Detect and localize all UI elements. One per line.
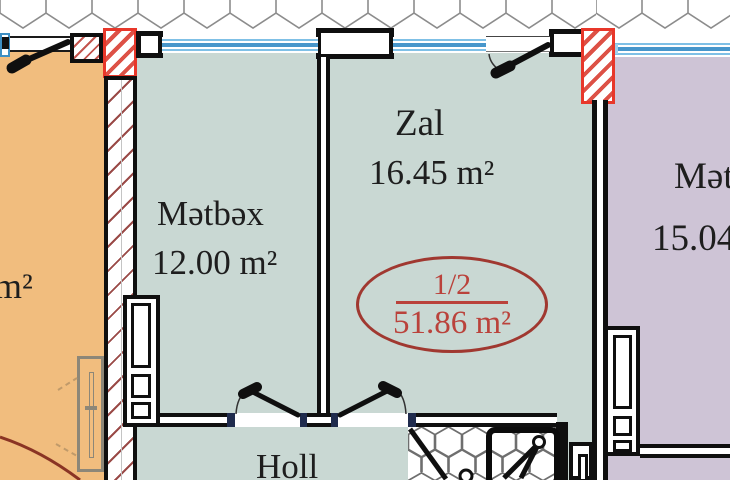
label-adjacent-left-area-suffix: m² [0, 268, 33, 304]
adjacent-left-door-frame [77, 356, 104, 472]
door-panel-line [89, 372, 94, 458]
total-area-stamp: 1/2 51.86 m² [356, 256, 548, 353]
window-end-cap [2, 37, 9, 49]
window-pier-kitchen-left [136, 31, 163, 58]
label-adjacent-right-area: 15.04 [652, 220, 730, 257]
label-hall-name: Holl [256, 449, 318, 480]
wall-living-shaft [408, 413, 557, 427]
label-kitchen-area: 12.00 m² [152, 245, 277, 280]
structural-column-left [103, 28, 137, 78]
door-opening-kitchen [235, 413, 300, 427]
label-adjacent-right-name: Mət [674, 158, 730, 195]
window-pier-center [316, 28, 394, 59]
facade-hex-hatch-band-right [596, 0, 730, 41]
stamp-room-fraction: 1/2 [433, 269, 471, 301]
wall-kitchen-living [317, 57, 330, 415]
balcony-door-band-living [486, 36, 550, 52]
floor-plan-canvas: Mətbəx 12.00 m² Zal 16.45 m² Holl Mət 15… [0, 0, 730, 480]
elevator-shaft-symbol [486, 427, 560, 480]
radiator-kitchen [123, 295, 160, 427]
label-living-name: Zal [395, 105, 444, 142]
door-opening-living [338, 413, 408, 427]
door-handle-mark [85, 406, 97, 410]
wall-cap [227, 413, 235, 427]
label-living-area: 16.45 m² [369, 155, 494, 190]
wall-axis-line [121, 80, 122, 480]
window-living [393, 37, 486, 53]
label-kitchen-name: Mətbəx [157, 196, 264, 231]
structural-column-right [581, 28, 615, 104]
stamp-divider [396, 301, 508, 304]
window-adjacent-right [613, 41, 730, 57]
wall-hatch-box-left [70, 33, 103, 63]
wall-adjacent-room-bottom [640, 444, 730, 458]
duct-box [569, 442, 593, 480]
balcony-door-band-left [8, 36, 70, 52]
window-kitchen [162, 37, 318, 53]
stamp-total-area: 51.86 m² [393, 307, 511, 340]
wall-cap [331, 413, 338, 427]
wall-cap [408, 413, 416, 427]
radiator-adjacent-right [604, 326, 640, 456]
wall-cap [300, 413, 307, 427]
